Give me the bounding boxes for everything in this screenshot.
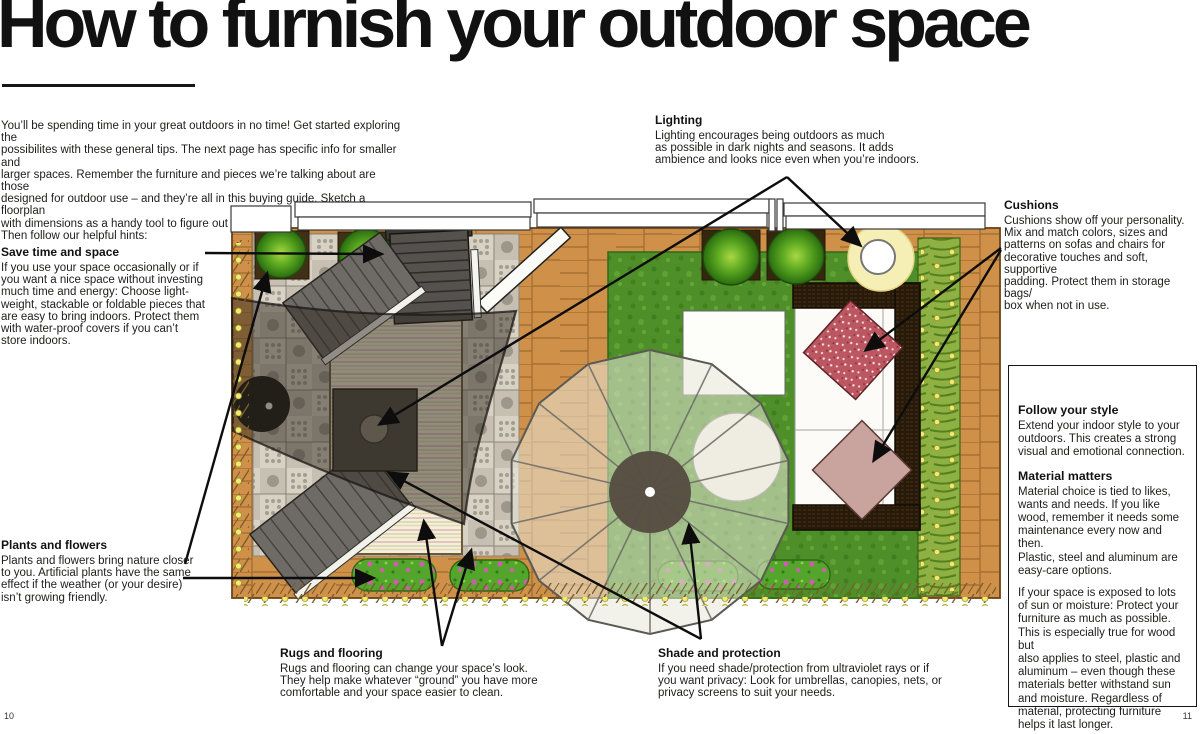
lawn [608,252,920,598]
wood-deck [232,228,1000,598]
arrow-lighting-lantern [380,177,787,424]
wicker-sofa [793,283,920,530]
shade-sail [232,298,516,524]
pink-cushion [813,421,912,520]
round-table [693,413,781,501]
callout-arrows [183,177,1001,646]
arrow-save-time [205,253,381,254]
flower-beds [352,559,830,591]
callout-rugs: Rugs and flooring Rugs and flooring can … [280,647,555,700]
umbrella [512,350,789,634]
callout-cushions-body: Cushions show off your personality. Mix … [1004,215,1200,313]
arrow-rugs-rug [424,522,442,646]
arrow-rugs-tiles [442,551,471,646]
follow-style-body: Extend your indoor style to your outdoor… [1018,420,1190,460]
intro-paragraph: You’ll be spending time in your great ou… [1,120,401,242]
net-border-left [233,240,249,586]
page-title: How to furnish your outdoor space [0,0,1028,58]
callout-plants-body: Plants and flowers bring nature closer t… [1,555,201,604]
string-lights-bottom [244,597,992,606]
white-outdoor-table [683,311,785,395]
callout-rugs-heading: Rugs and flooring [280,647,555,660]
callout-shade: Shade and protection If you need shade/p… [658,647,943,700]
material-matters-body2: If your space is exposed to lots of sun … [1018,587,1190,732]
page-number-right: 11 [1183,711,1192,721]
grill [234,376,290,432]
arrow-cushions-red [866,248,1001,350]
material-matters-heading: Material matters [1018,469,1190,483]
callout-cushions: Cushions Cushions show off your personal… [1004,199,1200,313]
string-lights-left [234,243,243,589]
follow-style-heading: Follow your style [1018,403,1190,417]
callout-save-time-heading: Save time and space [1,246,206,259]
arrow-lighting-lamp [787,177,860,245]
callout-shade-heading: Shade and protection [658,647,943,660]
callout-save-time-body: If you use your space occasionally or if… [1,262,206,347]
net-border-bottom [236,583,996,603]
patterned-tile-floor [253,234,519,556]
callout-cushions-heading: Cushions [1004,199,1200,212]
table-lantern [360,415,388,443]
side-table [333,389,417,471]
page-number-left: 10 [4,711,14,721]
arrow-shade-umbrella [689,526,701,639]
lounge-chair-top [281,231,425,365]
callout-plants-heading: Plants and flowers [1,539,201,552]
striped-rug [330,298,462,554]
hedge [918,238,960,596]
string-lights-hedge [921,246,958,591]
callout-rugs-body: Rugs and flooring can change your space’… [280,663,555,700]
pendant-lamp [848,225,914,291]
lounge-chair-bottom [248,444,415,600]
callout-shade-body: If you need shade/protection from ultrav… [658,663,943,700]
material-matters-body: Material choice is tied to likes, wants … [1018,486,1190,578]
style-materials-box: Follow your style Extend your indoor sty… [1008,365,1197,707]
buying-guide-page: How to furnish your outdoor space You’ll… [0,0,1200,734]
white-bench [478,227,571,312]
callout-lighting-body: Lighting encourages being outdoors as mu… [655,130,920,167]
arrow-shade-sail [389,473,701,639]
callout-plants: Plants and flowers Plants and flowers br… [1,539,201,604]
callout-lighting: Lighting Lighting encourages being outdo… [655,114,920,167]
callout-lighting-heading: Lighting [655,114,920,127]
red-cushion [804,301,903,400]
arrow-cushions-pink [874,250,1001,460]
callout-save-time: Save time and space If you use your spac… [1,246,206,347]
title-underline [2,84,195,87]
